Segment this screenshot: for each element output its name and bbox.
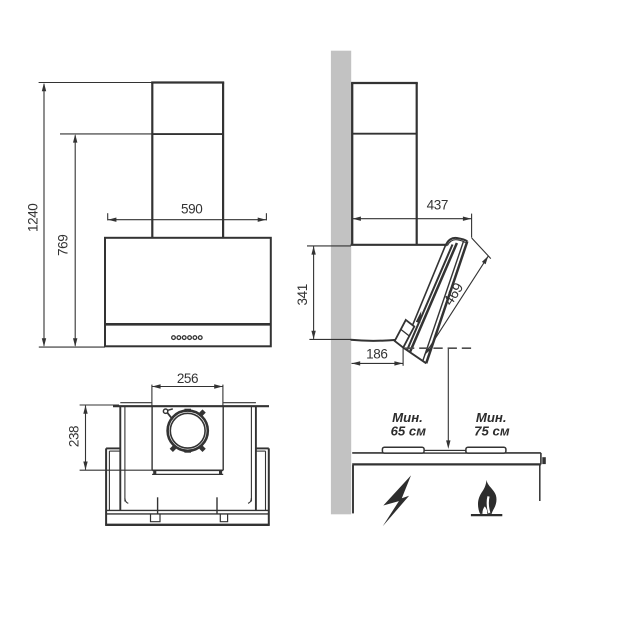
svg-text:769: 769 [56, 235, 71, 256]
svg-text:65 см: 65 см [391, 423, 427, 438]
svg-text:437: 437 [427, 197, 448, 212]
svg-text:1240: 1240 [26, 204, 41, 232]
svg-text:238: 238 [67, 426, 82, 447]
svg-text:256: 256 [177, 371, 198, 386]
svg-text:75 см: 75 см [474, 423, 510, 438]
svg-text:341: 341 [295, 284, 310, 305]
svg-text:186: 186 [366, 347, 387, 362]
svg-text:590: 590 [181, 201, 202, 216]
